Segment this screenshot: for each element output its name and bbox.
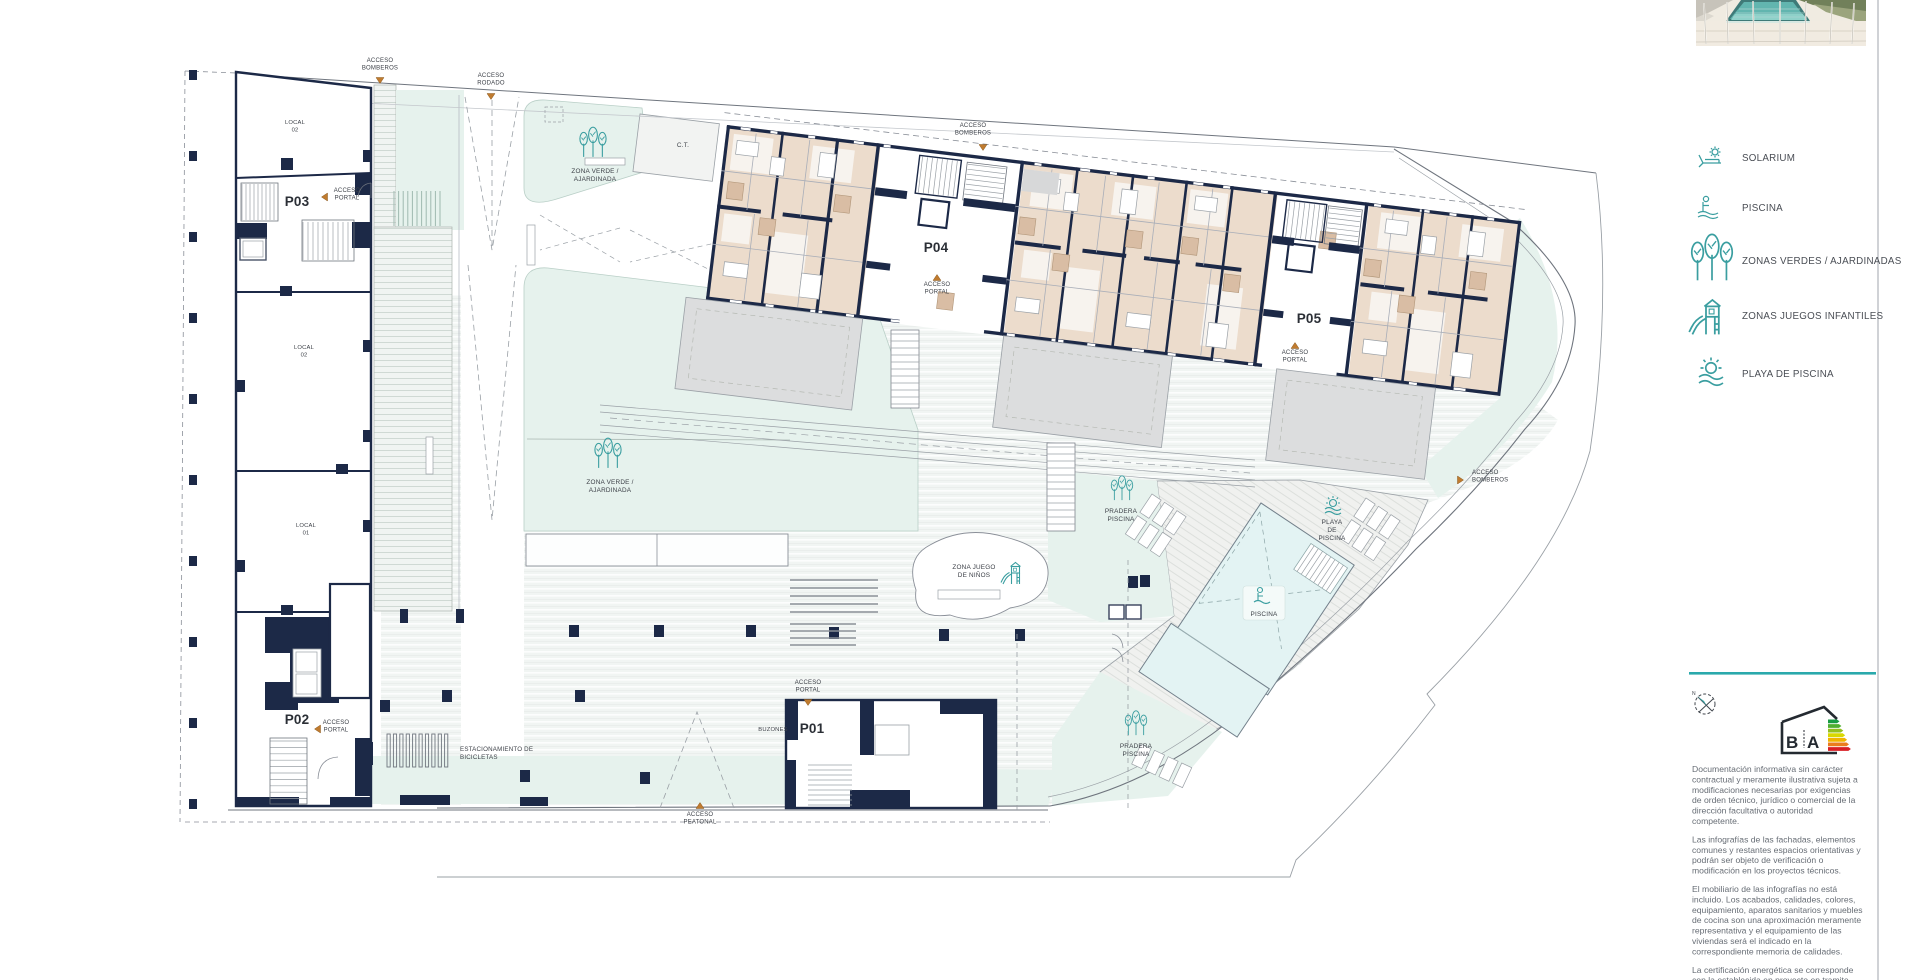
svg-text:PORTAL: PORTAL (796, 688, 821, 694)
svg-text:PLAYA: PLAYA (1322, 519, 1343, 526)
svg-text:ESTACIONAMIENTO DE: ESTACIONAMIENTO DE (460, 746, 533, 753)
svg-text:con la establecida en proyecto: con la establecida en proyecto en tramit… (1692, 975, 1849, 980)
svg-text:ACCESO: ACCESO (1472, 470, 1499, 476)
svg-text:incluido. Los acabados, calida: incluido. Los acabados, calidades, color… (1692, 894, 1855, 904)
svg-text:equipamiento, aparatos sanitar: equipamiento, aparatos sanitarios y mueb… (1692, 905, 1863, 915)
svg-text:El mobiliario de las infografí: El mobiliario de las infografías no está (1692, 884, 1837, 894)
svg-text:dirección facultativa o autori: dirección facultativa o autoridad (1692, 806, 1813, 816)
svg-text:AJARDINADA: AJARDINADA (589, 487, 632, 494)
svg-text:BOMBEROS: BOMBEROS (955, 131, 991, 137)
svg-text:PISCINA: PISCINA (1742, 203, 1783, 214)
svg-text:Documentación informativa sin: Documentación informativa sin carácter (1692, 764, 1843, 774)
svg-text:DE: DE (1327, 527, 1336, 534)
svg-text:PISCINA: PISCINA (1108, 516, 1136, 523)
svg-text:PISCINA: PISCINA (1319, 535, 1347, 542)
svg-text:BUZONES: BUZONES (758, 727, 787, 733)
svg-text:PLAYA DE PISCINA: PLAYA DE PISCINA (1742, 369, 1834, 380)
svg-text:PORTAL: PORTAL (324, 728, 349, 734)
svg-text:ZONA VERDE /: ZONA VERDE / (571, 168, 618, 175)
svg-text:PORTAL: PORTAL (335, 196, 360, 202)
svg-text:modificaciones necesarias por: modificaciones necesarias por exigencias (1692, 785, 1851, 795)
svg-text:podrán ser objeto de verificac: podrán ser objeto de verificación o (1692, 855, 1824, 865)
svg-text:P04: P04 (924, 240, 949, 255)
svg-text:AJARDINADA: AJARDINADA (574, 176, 617, 183)
svg-text:viviendas será el indicado en: viviendas será el indicado en la (1692, 936, 1812, 946)
svg-text:LOCAL: LOCAL (285, 120, 306, 126)
svg-text:de orden técnico, jurídico o c: de orden técnico, jurídico o comercial d… (1692, 795, 1856, 805)
svg-text:ACCESO: ACCESO (924, 282, 951, 288)
svg-text:ACCESO: ACCESO (478, 73, 505, 79)
svg-text:ZONAS JUEGOS INFANTILES: ZONAS JUEGOS INFANTILES (1742, 311, 1884, 322)
svg-text:ACCESO: ACCESO (795, 680, 822, 686)
svg-text:P03: P03 (285, 194, 310, 209)
svg-text:ACCESO: ACCESO (1282, 350, 1309, 356)
svg-text:LOCAL: LOCAL (296, 523, 317, 529)
svg-text:02: 02 (292, 127, 299, 133)
svg-text:PORTAL: PORTAL (925, 290, 950, 296)
svg-text:Las infografías de las fachada: Las infografías de las fachadas, element… (1692, 834, 1855, 844)
svg-text:ACCESO: ACCESO (367, 58, 394, 64)
svg-text:PRADERA: PRADERA (1120, 743, 1153, 750)
svg-text:competente.: competente. (1692, 816, 1739, 826)
svg-text:ACCESO: ACCESO (960, 123, 987, 129)
svg-text:P05: P05 (1297, 311, 1322, 326)
svg-text:P02: P02 (285, 712, 310, 727)
svg-text:PRADERA: PRADERA (1105, 508, 1138, 515)
svg-text:DE NIÑOS: DE NIÑOS (958, 570, 991, 579)
svg-text:comunes y restantes espacios o: comunes y restantes espacios orientativa… (1692, 845, 1861, 855)
svg-text:N: N (1692, 691, 1696, 697)
svg-text:BOMBEROS: BOMBEROS (362, 66, 398, 72)
svg-text:ACCESO: ACCESO (323, 720, 350, 726)
svg-text:PEATONAL: PEATONAL (683, 820, 717, 826)
svg-text:LOCAL: LOCAL (294, 345, 315, 351)
svg-text:01: 01 (303, 530, 310, 536)
svg-text:02: 02 (301, 352, 308, 358)
svg-text:ZONA VERDE /: ZONA VERDE / (586, 479, 633, 486)
svg-text:C.T.: C.T. (677, 142, 689, 149)
svg-text:modificación en los proyectos: modificación en los proyectos técnicos. (1692, 866, 1841, 876)
svg-text:SOLARIUM: SOLARIUM (1742, 153, 1795, 164)
svg-text:de cocina son una aproximación: de cocina son una aproximación meramente (1692, 915, 1861, 925)
svg-text:A: A (1807, 733, 1819, 752)
svg-text:BICICLETAS: BICICLETAS (460, 754, 498, 761)
svg-text:RODADO: RODADO (477, 81, 505, 87)
svg-text:B: B (1786, 733, 1798, 752)
svg-text:BOMBEROS: BOMBEROS (1472, 478, 1508, 484)
svg-text:PISCINA: PISCINA (1251, 611, 1279, 618)
svg-text:contractual y meramente ilustr: contractual y meramente ilustrativa suje… (1692, 774, 1858, 784)
svg-text:ZONAS VERDES / AJARDINADAS: ZONAS VERDES / AJARDINADAS (1742, 256, 1902, 267)
svg-text:ACCESO: ACCESO (687, 812, 714, 818)
svg-text:PISCINA: PISCINA (1123, 751, 1151, 758)
svg-text:La certificación energética se: La certificación energética se correspon… (1692, 965, 1854, 975)
svg-text:ZONA JUEGO: ZONA JUEGO (952, 564, 995, 571)
svg-text:ACCESO: ACCESO (334, 188, 361, 194)
svg-text:correspondiente memoria de cal: correspondiente memoria de calidades. (1692, 946, 1842, 956)
svg-text:P01: P01 (800, 721, 825, 736)
svg-text:representativa y el equipamien: representativa y el equipamiento de las (1692, 926, 1842, 936)
svg-text:PORTAL: PORTAL (1283, 358, 1308, 364)
